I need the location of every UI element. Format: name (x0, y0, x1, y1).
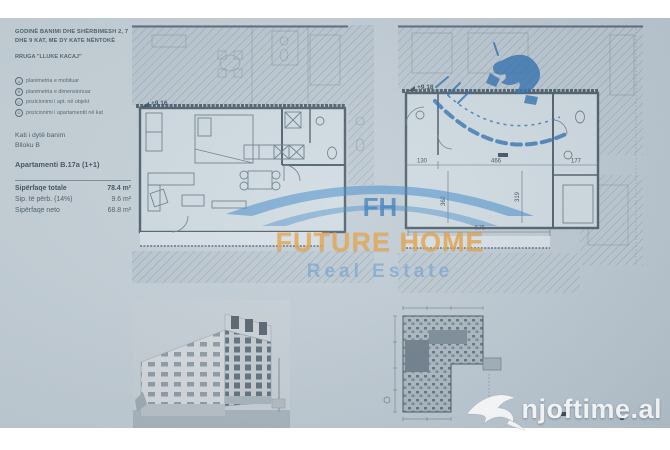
neighbour-area-top (132, 25, 374, 105)
area-row-common: Sip. të përb. (14%) 9.6 m² (15, 195, 131, 206)
info-panel: GODINË BANIMI DHE SHËRBIMESH 2, 7 DHE 9 … (15, 28, 137, 216)
svg-text:319: 319 (515, 191, 521, 202)
apartment-interior (406, 93, 598, 228)
legend-item: A planimetria e mobiluar (15, 77, 137, 85)
street-label: RRUGA "LLUKE KACAJ" (15, 54, 137, 60)
svg-text:130: 130 (417, 159, 428, 165)
njoftime-logo: njoftime.al (465, 386, 662, 432)
area-row-net: Sipërfaqe neto 68.8 m² (15, 206, 131, 217)
neighbour-area-right (348, 25, 374, 185)
floor-block-info: Kati i dytë banim Blloku B (15, 131, 137, 151)
floor-label: Kati i dytë banim (15, 131, 137, 141)
svg-text:177: 177 (571, 159, 582, 165)
svg-text:362: 362 (441, 195, 447, 206)
legend-key-badge: C (15, 98, 23, 106)
svg-text:466: 466 (491, 159, 502, 165)
site-plan-marker (384, 397, 390, 403)
building-header: GODINË BANIMI DHE SHËRBIMESH 2, 7 DHE 9 … (15, 28, 137, 45)
building-header-line1: GODINË BANIMI DHE SHËRBIMESH 2, 7 (15, 28, 137, 37)
area-label: Sipërfaqe neto (15, 206, 60, 217)
area-value: 9.6 m² (111, 195, 131, 206)
exterior-hatch-bottom (132, 251, 374, 283)
scanned-document-paper: GODINË BANIMI DHE SHËRBIMESH 2, 7 DHE 9 … (0, 18, 670, 428)
legend-item: B planimetria e dimensionuar (15, 88, 137, 96)
area-row-total: Sipërfaqe totale 78.4 m² (15, 184, 131, 195)
area-label: Sipërfaqe totale (15, 184, 67, 195)
svg-text:+9.16: +9.16 (151, 100, 168, 107)
floorplan-dimensioned: 130 466 177 362 319 575 (398, 25, 643, 298)
legend-item: D pozicionimi i apartamentit në kat (15, 109, 137, 117)
legend-key-badge: D (15, 109, 23, 117)
building-photo (133, 300, 290, 433)
floorplan-furnished: +9.16 (132, 25, 374, 288)
apartment-title: Apartamenti B.17a (1+1) (15, 160, 137, 169)
svg-text:575: 575 (475, 226, 486, 232)
neighbour-area-right (598, 25, 643, 155)
legend-item: C pozicionimi i apt. në objekt (15, 98, 137, 106)
plan-legend: A planimetria e mobiluar B planimetria e… (15, 77, 137, 117)
bird-icon (465, 386, 529, 432)
balcony (406, 236, 550, 248)
building-header-line2: DHE 9 KAT, ME DY KATE NËNTOKË (15, 37, 137, 46)
area-value: 78.4 m² (107, 184, 131, 195)
legend-key-badge: A (15, 77, 23, 85)
njoftime-text: njoftime.al (521, 394, 662, 425)
area-label: Sip. të përb. (14%) (15, 195, 72, 206)
area-value: 68.8 m² (108, 206, 131, 217)
legend-key-badge: B (15, 88, 23, 96)
scanned-listing-photo: GODINË BANIMI DHE SHËRBIMESH 2, 7 DHE 9 … (0, 0, 670, 450)
svg-text:+9.18: +9.18 (417, 84, 434, 91)
block-label: Blloku B (15, 141, 137, 151)
area-table: Sipërfaqe totale 78.4 m² Sip. të përb. (… (15, 180, 131, 216)
exterior-hatch-bottom (398, 253, 580, 293)
apartment-interior (140, 108, 345, 232)
